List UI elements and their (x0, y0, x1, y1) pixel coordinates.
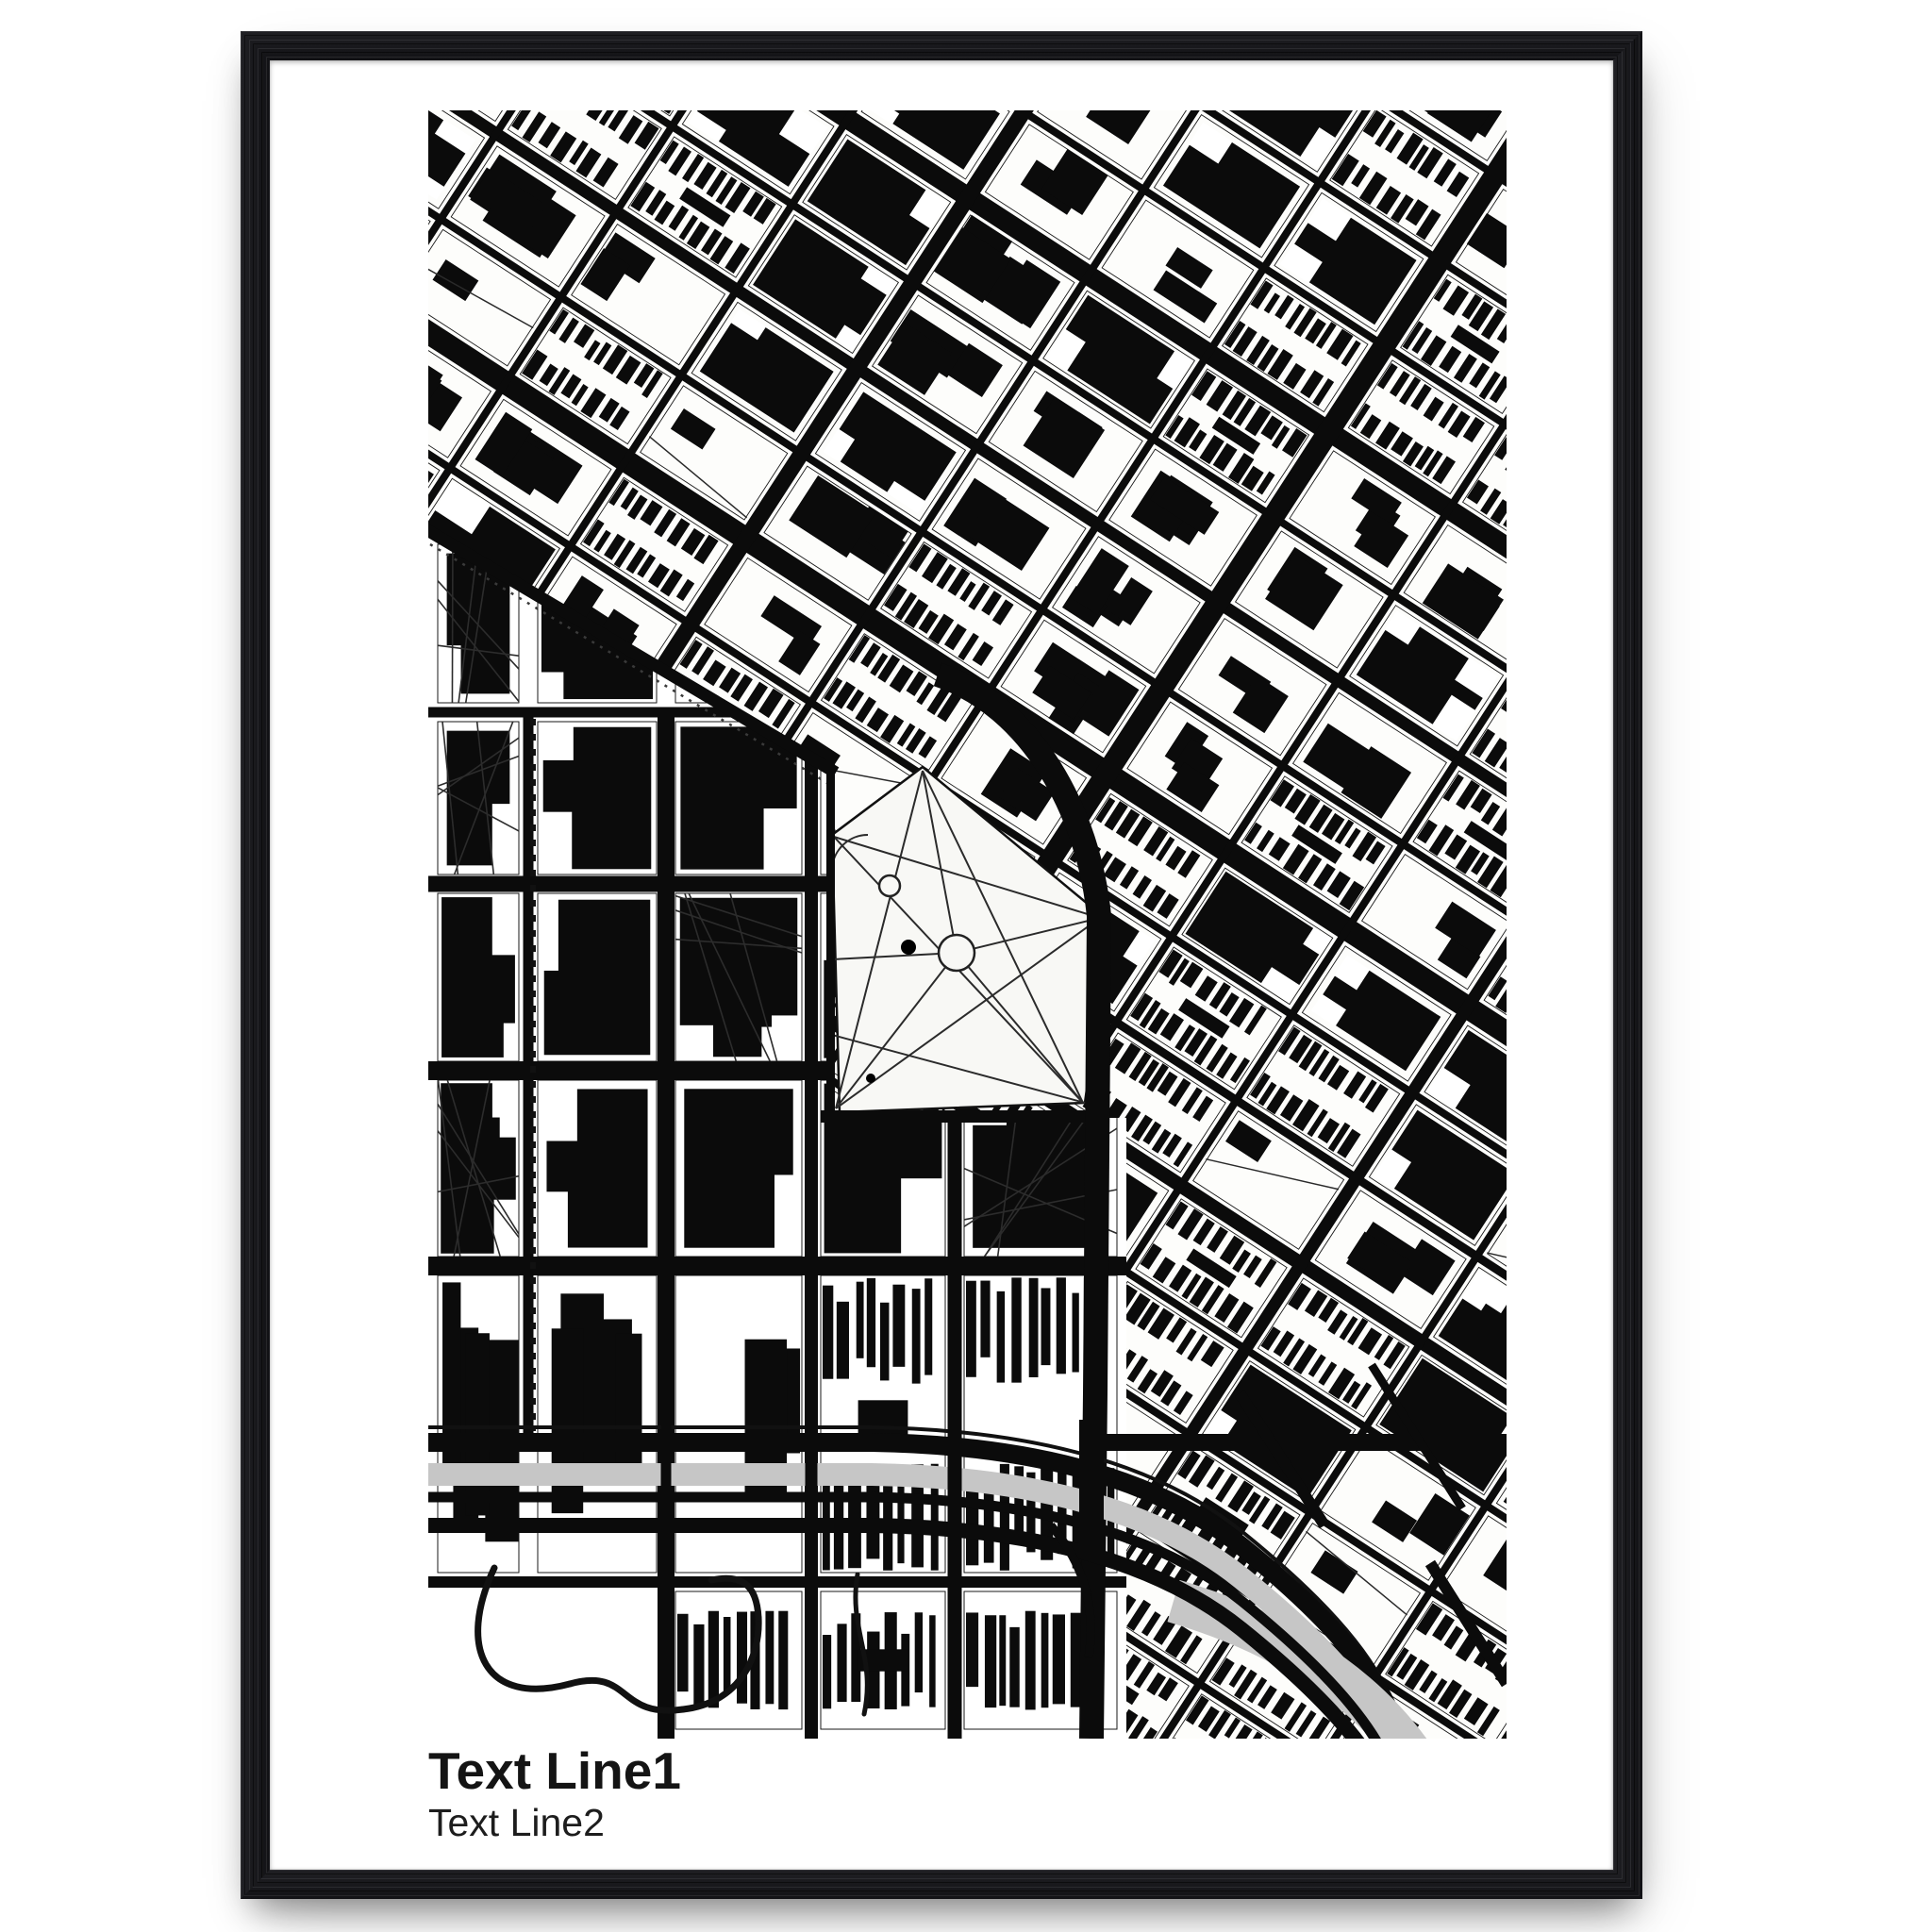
city-map-art (428, 110, 1507, 1739)
poster-mat: Text Line1 Text Line2 (270, 60, 1613, 1870)
poster-subtitle: Text Line2 (428, 1802, 1466, 1844)
page-background: { "poster": { "title": "Text Line1", "su… (0, 0, 1932, 1932)
frame-rail-left (241, 31, 270, 1899)
frame-rail-bottom (241, 1870, 1642, 1899)
frame-rail-right (1613, 31, 1642, 1899)
poster-frame: Text Line1 Text Line2 (241, 31, 1642, 1899)
city-map-svg (428, 110, 1507, 1739)
frame-rail-top (241, 31, 1642, 60)
poster-caption: Text Line1 Text Line2 (428, 1744, 1466, 1844)
poster-title: Text Line1 (428, 1744, 1466, 1799)
